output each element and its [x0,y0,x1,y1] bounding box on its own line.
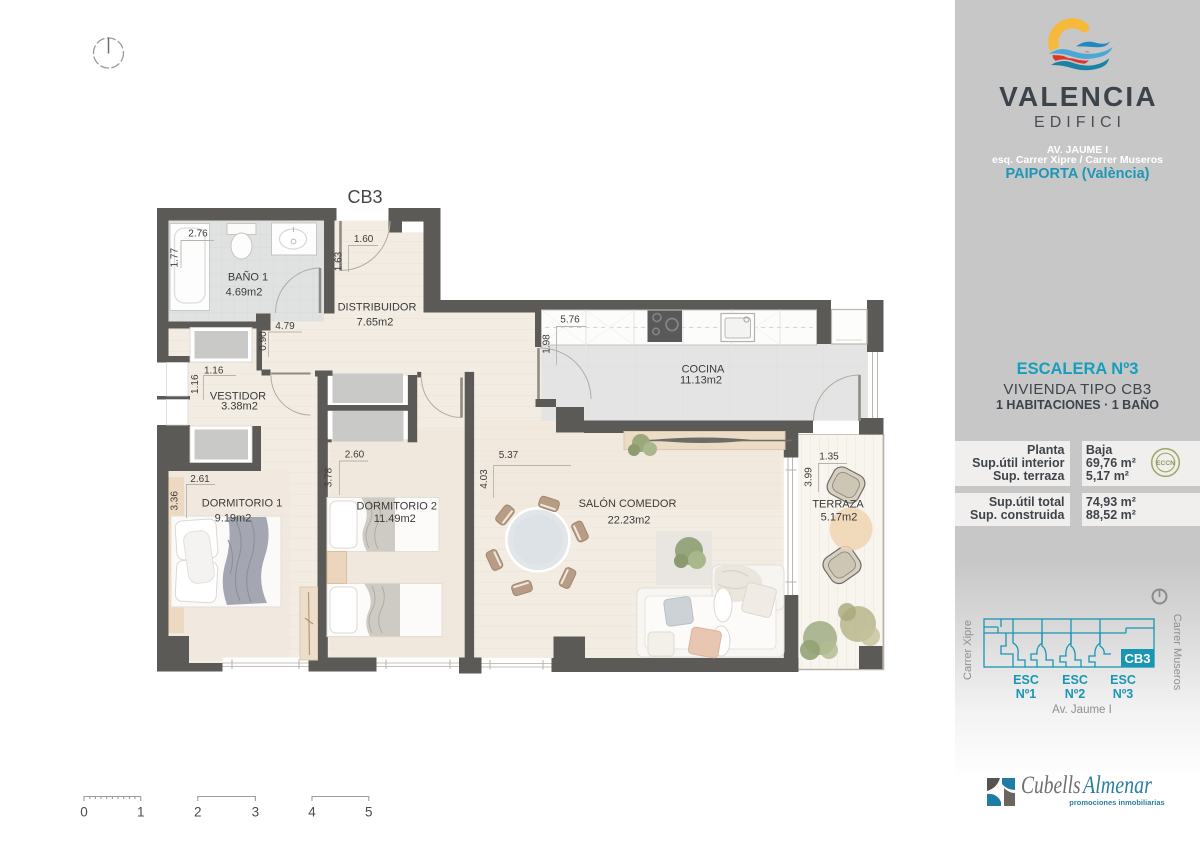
svg-text:BAÑO 1: BAÑO 1 [228,271,268,284]
svg-text:4: 4 [308,805,316,820]
svg-text:5.37: 5.37 [499,450,519,461]
svg-text:5.17m2: 5.17m2 [821,512,858,524]
svg-text:4.79: 4.79 [275,321,295,332]
svg-text:DORMITORIO 2: DORMITORIO 2 [357,501,437,513]
svg-text:2.76: 2.76 [188,229,208,240]
svg-text:5.76: 5.76 [560,315,580,326]
svg-text:3: 3 [252,805,260,820]
svg-text:0: 0 [80,805,88,820]
svg-text:2.61: 2.61 [190,474,210,485]
svg-text:7.65m2: 7.65m2 [357,317,394,329]
svg-text:TERRAZA: TERRAZA [812,499,864,511]
svg-text:9.19m2: 9.19m2 [215,513,252,525]
svg-text:1.77: 1.77 [169,248,180,268]
svg-text:3.78: 3.78 [324,467,335,487]
svg-text:CB3: CB3 [1124,651,1150,666]
svg-text:CB3: CB3 [347,187,382,207]
svg-text:11.49m2: 11.49m2 [374,513,416,525]
svg-text:3.99: 3.99 [804,467,815,487]
svg-text:4.69m2: 4.69m2 [226,287,263,299]
svg-text:3.36: 3.36 [170,491,181,511]
svg-text:ECCN: ECCN [1156,460,1175,467]
svg-text:2: 2 [194,805,202,820]
svg-text:1: 1 [137,805,145,820]
svg-text:DISTRIBUIDOR: DISTRIBUIDOR [338,302,417,314]
svg-text:0.90: 0.90 [258,331,269,351]
svg-text:DORMITORIO 1: DORMITORIO 1 [202,498,282,510]
svg-text:1.63: 1.63 [334,251,345,271]
svg-text:1.16: 1.16 [204,366,224,377]
svg-text:2.60: 2.60 [345,450,365,461]
svg-text:11.13m2: 11.13m2 [680,375,722,387]
svg-text:3.38m2: 3.38m2 [221,401,258,413]
svg-text:5: 5 [365,805,373,820]
svg-text:1.98: 1.98 [541,334,552,354]
svg-text:22.23m2: 22.23m2 [608,515,651,527]
svg-text:1.60: 1.60 [354,234,374,245]
svg-text:4.03: 4.03 [479,469,490,489]
svg-text:1.35: 1.35 [819,452,839,463]
svg-text:SALÓN COMEDOR: SALÓN COMEDOR [579,497,677,510]
svg-text:1.16: 1.16 [190,374,201,394]
